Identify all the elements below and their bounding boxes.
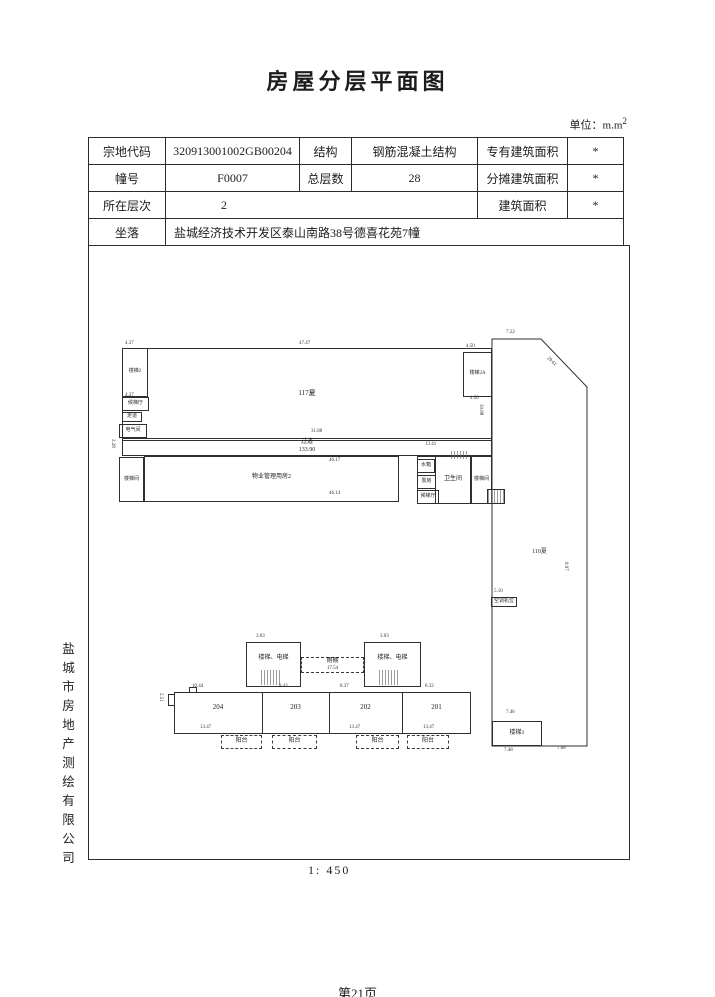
- dimension-label: 8.37: [340, 684, 349, 689]
- total-floors-label: 总层数: [300, 165, 352, 192]
- total-floors-value: 28: [352, 165, 478, 192]
- page-title: 房屋分层平面图: [0, 64, 715, 96]
- dimension-label: 4.50: [470, 396, 479, 401]
- dimension-label: 7.46: [506, 710, 515, 715]
- property-info-table: 宗地代码 320913001002GB00204 结构 钢筋混凝土结构 专有建筑…: [88, 137, 624, 246]
- dimension-label: 10.44: [192, 684, 203, 689]
- dimension-label: 30.88: [478, 404, 483, 415]
- dimension-label: 13.41: [425, 442, 436, 447]
- table-row: 宗地代码 320913001002GB00204 结构 钢筋混凝土结构 专有建筑…: [89, 138, 624, 165]
- structure-label: 结构: [300, 138, 352, 165]
- dimension-label: 7.08: [557, 746, 566, 751]
- building-area-label: 建筑面积: [478, 192, 568, 219]
- floor-level-label: 所在层次: [89, 192, 166, 219]
- dimension-label: 46.14: [329, 491, 340, 496]
- page-number: 第21页: [0, 983, 715, 997]
- dimension-label: 2.51: [158, 693, 163, 702]
- dimension-label: 29.61: [545, 356, 556, 367]
- table-row: 坐落 盐城经济技术开发区泰山南路38号德喜花苑7幢: [89, 219, 624, 246]
- unit-note: 单位：m.m2: [570, 116, 627, 133]
- surveyor-company-name: 盐城市房地产测绘有限公司: [58, 642, 77, 870]
- location-value: 盐城经济技术开发区泰山南路38号德喜花苑7幢: [166, 219, 624, 246]
- table-row: 幢号 F0007 总层数 28 分摊建筑面积 *: [89, 165, 624, 192]
- dimension-label: 7.48: [504, 748, 513, 753]
- dimension-label: 4.37: [125, 393, 134, 398]
- parcel-code-value: 320913001002GB00204: [166, 138, 300, 165]
- dimension-label: 5.10: [494, 589, 503, 594]
- shared-area-value: *: [568, 165, 624, 192]
- dimension-label: 3.03: [256, 634, 265, 639]
- floor-level-value: 2: [166, 192, 478, 219]
- dimension-label: 46.17: [329, 458, 340, 463]
- dimension-label: 31.88: [311, 429, 322, 434]
- dimension-label: 4.37: [125, 341, 134, 346]
- building-no-label: 幢号: [89, 165, 166, 192]
- dimension-layer: 4.3747.474.504.374.5031.8813.4146.1746.1…: [89, 246, 629, 859]
- dimension-label: 47.47: [299, 341, 310, 346]
- dimension-label: 4.50: [466, 344, 475, 349]
- dimension-label: 8.32: [425, 684, 434, 689]
- dimension-label: 7.22: [506, 330, 515, 335]
- drawing-scale: 1: 450: [308, 863, 350, 878]
- floor-plan: 117夏 楼梯2 楼梯2A 候梯厅 走道 电气间 过道 133.90 物业管理用…: [88, 245, 630, 860]
- exclusive-area-value: *: [568, 138, 624, 165]
- dimension-label: 8.42: [279, 684, 288, 689]
- location-label: 坐落: [89, 219, 166, 246]
- shared-area-label: 分摊建筑面积: [478, 165, 568, 192]
- dimension-label: 8.97: [563, 562, 568, 571]
- dimension-label: 13.47: [423, 725, 434, 730]
- exclusive-area-label: 专有建筑面积: [478, 138, 568, 165]
- structure-value: 钢筋混凝土结构: [352, 138, 478, 165]
- building-area-value: *: [568, 192, 624, 219]
- document-page: 房屋分层平面图 单位：m.m2 宗地代码 320913001002GB00204…: [0, 0, 715, 997]
- dimension-label: 2.28: [110, 439, 115, 448]
- dimension-label: 13.47: [200, 725, 211, 730]
- parcel-code-label: 宗地代码: [89, 138, 166, 165]
- building-no-value: F0007: [166, 165, 300, 192]
- dimension-label: 13.47: [349, 725, 360, 730]
- dimension-label: 3.03: [380, 634, 389, 639]
- table-row: 所在层次 2 建筑面积 *: [89, 192, 624, 219]
